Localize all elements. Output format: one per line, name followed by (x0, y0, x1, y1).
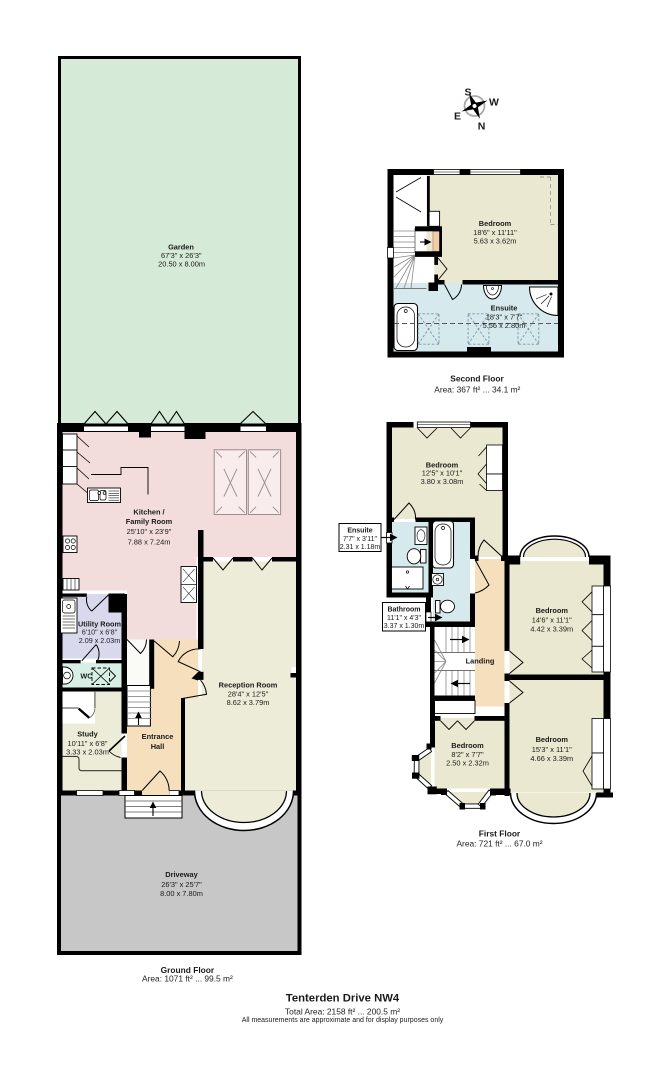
svg-text:Reception Room: Reception Room (219, 681, 278, 690)
svg-text:Driveway: Driveway (165, 870, 198, 879)
svg-text:3.80 x 3.08m: 3.80 x 3.08m (421, 477, 464, 486)
svg-text:Total Area: 2158 ft² ... 200.5: Total Area: 2158 ft² ... 200.5 m² (285, 1007, 400, 1017)
svg-text:25'10" x 23'9": 25'10" x 23'9" (127, 527, 172, 536)
svg-text:First Floor: First Floor (479, 829, 521, 839)
svg-text:Bedroom: Bedroom (536, 606, 569, 615)
svg-text:3.33 x 2.03m: 3.33 x 2.03m (66, 748, 109, 757)
svg-text:Area: 367 ft² ... 34.1 m²: Area: 367 ft² ... 34.1 m² (434, 384, 520, 394)
svg-text:Tenterden Drive NW4: Tenterden Drive NW4 (286, 993, 400, 1005)
svg-text:2.09 x 2.03m: 2.09 x 2.03m (79, 636, 121, 645)
svg-text:Landing: Landing (466, 657, 495, 666)
svg-text:Bedroom: Bedroom (479, 219, 512, 228)
svg-text:S: S (464, 87, 471, 99)
svg-text:Area: 721 ft² ... 67.0 m²: Area: 721 ft² ... 67.0 m² (456, 839, 542, 849)
svg-text:Bedroom: Bedroom (536, 735, 569, 744)
svg-text:Bedroom: Bedroom (451, 741, 484, 750)
svg-text:5.63 x 3.62m: 5.63 x 3.62m (474, 237, 517, 246)
svg-text:2.31 x 1.18m: 2.31 x 1.18m (340, 544, 381, 551)
svg-text:14'6" x 11'1": 14'6" x 11'1" (532, 616, 572, 625)
svg-text:Ensuite: Ensuite (347, 528, 372, 535)
svg-text:Family Room: Family Room (126, 517, 173, 526)
svg-text:11'1" x 4'3": 11'1" x 4'3" (387, 615, 421, 622)
svg-text:Entrance: Entrance (142, 732, 174, 741)
svg-text:Kitchen /: Kitchen / (133, 508, 164, 517)
svg-text:3.37 x 1.30m: 3.37 x 1.30m (384, 623, 425, 630)
svg-text:Second Floor: Second Floor (450, 374, 504, 384)
svg-text:All measurements are approxima: All measurements are approximate and for… (242, 1017, 444, 1024)
svg-text:20.50 x 8.00m: 20.50 x 8.00m (158, 260, 205, 269)
svg-text:5.56 x 2.80m: 5.56 x 2.80m (483, 321, 526, 330)
svg-text:WC: WC (80, 672, 93, 681)
svg-text:8.62 x 3.79m: 8.62 x 3.79m (227, 698, 270, 707)
svg-text:Study: Study (77, 730, 98, 739)
svg-text:Ensuite: Ensuite (491, 304, 518, 313)
svg-text:E: E (454, 111, 461, 123)
svg-text:7.88 x 7.24m: 7.88 x 7.24m (128, 538, 171, 547)
svg-text:4.42 x 3.39m: 4.42 x 3.39m (530, 625, 573, 634)
svg-text:4.66 x 3.39m: 4.66 x 3.39m (530, 754, 573, 763)
svg-text:8.00 x 7.80m: 8.00 x 7.80m (160, 889, 203, 898)
svg-text:15'3" x 11'1": 15'3" x 11'1" (532, 745, 572, 754)
svg-text:W: W (489, 97, 499, 109)
svg-text:Hall: Hall (151, 742, 165, 751)
svg-text:Area: 1071 ft² ... 99.5 m²: Area: 1071 ft² ... 99.5 m² (142, 974, 233, 984)
svg-text:Bathroom: Bathroom (387, 607, 420, 614)
svg-text:26'3" x 25'7": 26'3" x 25'7" (161, 880, 202, 889)
svg-text:N: N (478, 121, 486, 133)
svg-text:2.50 x 2.32m: 2.50 x 2.32m (446, 759, 489, 768)
svg-text:7'7" x 3'11": 7'7" x 3'11" (343, 536, 377, 543)
